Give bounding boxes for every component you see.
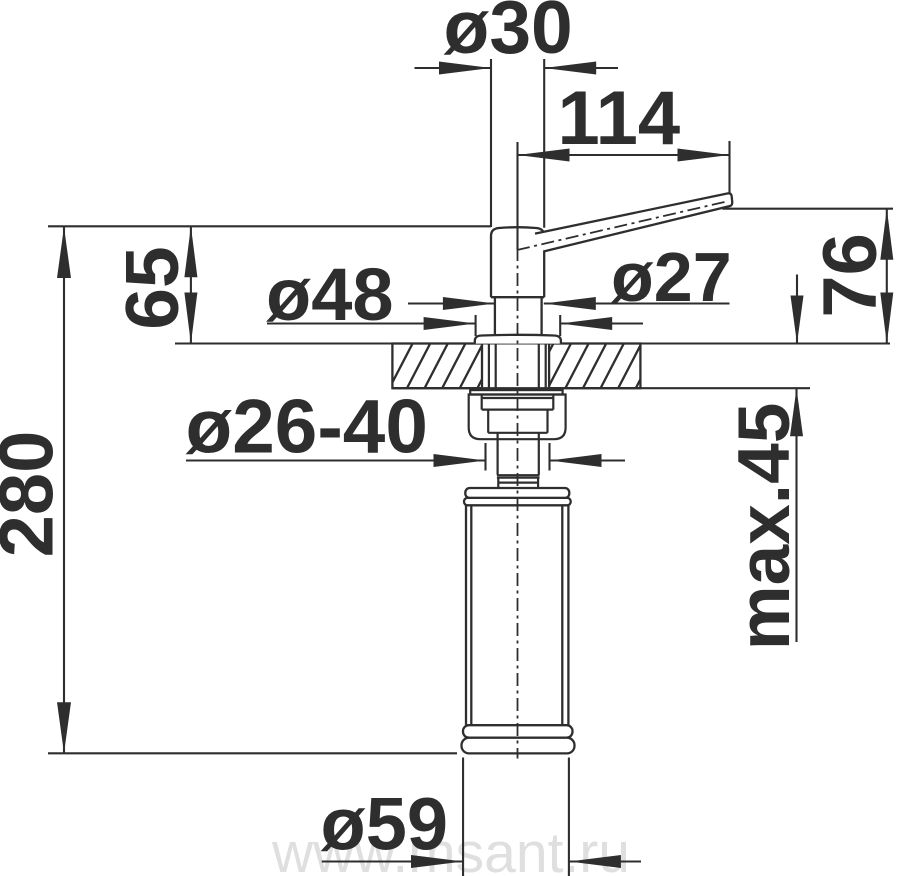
svg-text:ø48: ø48	[266, 253, 394, 336]
svg-text:ø26-40: ø26-40	[186, 385, 428, 470]
svg-text:ø27: ø27	[611, 238, 732, 316]
svg-text:76: 76	[808, 233, 893, 318]
svg-text:280: 280	[0, 431, 70, 558]
svg-text:114: 114	[558, 76, 681, 161]
svg-text:65: 65	[110, 246, 194, 329]
svg-text:ø59: ø59	[321, 783, 449, 866]
svg-text:ø30: ø30	[444, 0, 573, 69]
svg-text:max.45: max.45	[724, 403, 805, 651]
